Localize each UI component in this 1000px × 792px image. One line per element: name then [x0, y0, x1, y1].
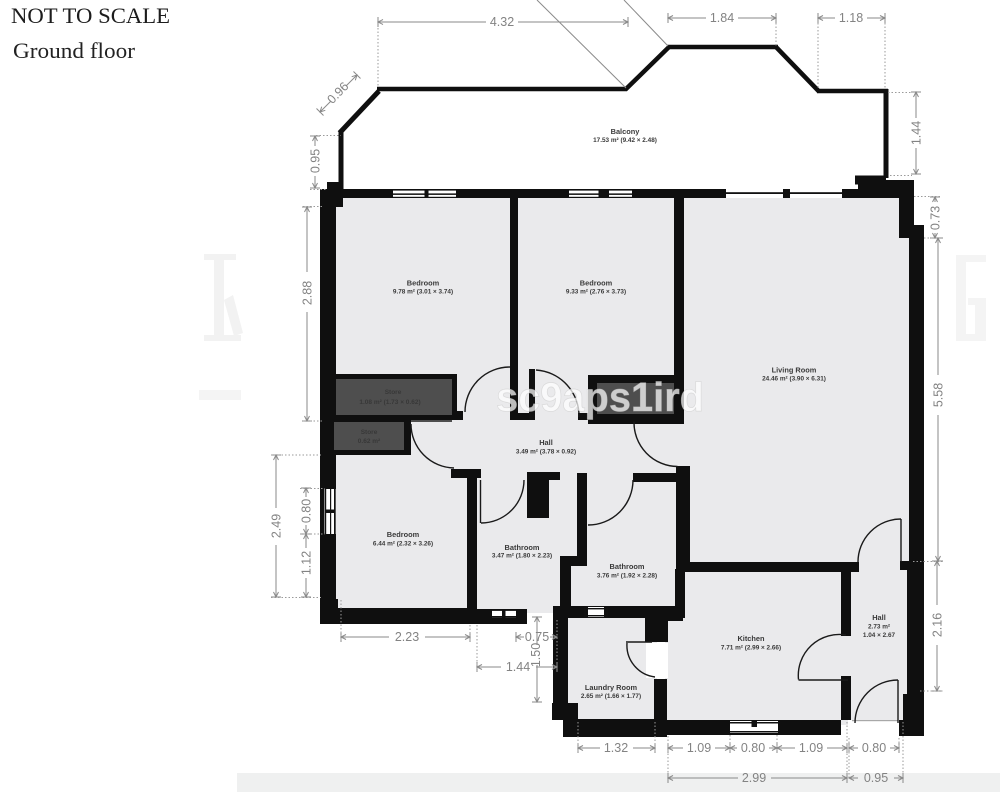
- svg-text:6.44 m² (2.32 × 3.26): 6.44 m² (2.32 × 3.26): [373, 541, 433, 548]
- svg-text:2.99: 2.99: [742, 771, 766, 785]
- svg-text:Bedroom: Bedroom: [580, 279, 613, 288]
- svg-text:0.62 m²: 0.62 m²: [358, 438, 381, 445]
- svg-text:1.09: 1.09: [799, 741, 823, 755]
- svg-text:Bathroom: Bathroom: [505, 543, 540, 552]
- svg-text:Laundry Room: Laundry Room: [585, 683, 638, 692]
- svg-text:1.18: 1.18: [839, 11, 863, 25]
- svg-text:Bathroom: Bathroom: [610, 562, 645, 571]
- svg-text:1.44: 1.44: [910, 121, 924, 145]
- svg-text:5.58: 5.58: [932, 383, 946, 407]
- svg-text:1.44: 1.44: [506, 660, 530, 674]
- svg-text:1.12: 1.12: [300, 551, 314, 575]
- svg-text:3.76 m² (1.92 × 2.28): 3.76 m² (1.92 × 2.28): [597, 573, 657, 580]
- svg-text:1.09: 1.09: [687, 741, 711, 755]
- svg-text:0.73: 0.73: [929, 206, 943, 230]
- svg-text:17.53 m² (9.42 × 2.48): 17.53 m² (9.42 × 2.48): [593, 137, 657, 144]
- svg-text:2.88: 2.88: [301, 281, 315, 305]
- svg-text:Store: Store: [385, 389, 402, 396]
- svg-text:0.80: 0.80: [300, 499, 314, 523]
- svg-text:Balcony: Balcony: [611, 127, 641, 136]
- svg-text:7.71 m² (2.99 × 2.66): 7.71 m² (2.99 × 2.66): [721, 645, 781, 652]
- svg-text:24.46 m² (3.90 × 6.31): 24.46 m² (3.90 × 6.31): [762, 376, 826, 383]
- svg-text:0.95: 0.95: [309, 149, 323, 173]
- svg-text:Ground floor: Ground floor: [13, 38, 136, 63]
- svg-text:9.33 m² (2.76 × 3.73): 9.33 m² (2.76 × 3.73): [566, 289, 626, 296]
- svg-text:0.80: 0.80: [741, 741, 765, 755]
- svg-text:2.49: 2.49: [270, 514, 284, 538]
- svg-text:2.65 m² (1.66 × 1.77): 2.65 m² (1.66 × 1.77): [581, 693, 641, 700]
- svg-text:3.47 m² (1.80 × 2.23): 3.47 m² (1.80 × 2.23): [492, 553, 552, 560]
- svg-text:1.08 m² (1.73 × 0.62): 1.08 m² (1.73 × 0.62): [359, 399, 420, 406]
- svg-text:Store: Store: [361, 429, 378, 436]
- svg-text:Hall: Hall: [872, 613, 886, 622]
- svg-text:2.73 m²: 2.73 m²: [868, 624, 890, 631]
- svg-text:NOT TO SCALE: NOT TO SCALE: [11, 3, 170, 28]
- svg-text:Hall: Hall: [539, 438, 553, 447]
- svg-text:4.32: 4.32: [490, 15, 514, 29]
- svg-text:Bedroom: Bedroom: [407, 279, 440, 288]
- svg-text:Bedroom: Bedroom: [387, 530, 420, 539]
- svg-text:9.78 m² (3.01 × 3.74): 9.78 m² (3.01 × 3.74): [393, 289, 453, 296]
- svg-text:Living Room: Living Room: [772, 366, 817, 375]
- svg-text:2.16: 2.16: [931, 613, 945, 637]
- svg-text:Kitchen: Kitchen: [737, 634, 765, 643]
- svg-text:3.49 m² (3.78 × 0.92): 3.49 m² (3.78 × 0.92): [516, 449, 576, 456]
- svg-text:1.84: 1.84: [710, 11, 734, 25]
- svg-text:1.04 × 2.67: 1.04 × 2.67: [863, 632, 896, 639]
- svg-text:1.50: 1.50: [529, 643, 543, 667]
- svg-text:0.95: 0.95: [864, 771, 888, 785]
- svg-text:sc9aps1ird: sc9aps1ird: [496, 374, 704, 420]
- svg-text:2.23: 2.23: [395, 630, 419, 644]
- svg-text:0.80: 0.80: [862, 741, 886, 755]
- svg-text:1.32: 1.32: [604, 741, 628, 755]
